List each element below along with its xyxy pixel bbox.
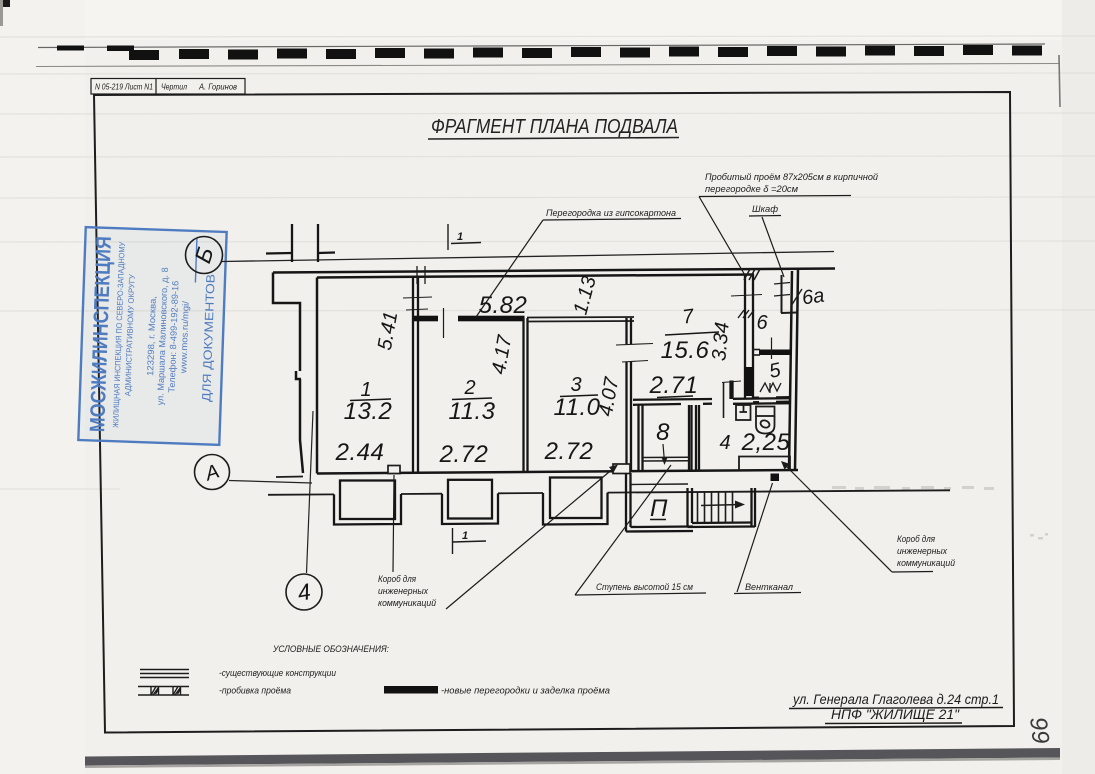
- svg-text:5.82: 5.82: [479, 292, 528, 319]
- svg-text:Короб для: Короб для: [378, 574, 416, 585]
- svg-text:6: 6: [756, 312, 768, 334]
- svg-text:2.71: 2.71: [649, 372, 699, 399]
- svg-text:Перегородка из гипсокартона: Перегородка из гипсокартона: [546, 208, 676, 219]
- svg-text:2.72: 2.72: [544, 438, 594, 465]
- svg-text:Короб для: Короб для: [897, 534, 935, 545]
- svg-text:УСЛОВНЫЕ ОБОЗНАЧЕНИЯ:: УСЛОВНЫЕ ОБОЗНАЧЕНИЯ:: [272, 644, 389, 655]
- svg-text:99: 99: [1024, 715, 1054, 745]
- svg-text:13.2: 13.2: [344, 398, 393, 425]
- svg-text:11.0: 11.0: [554, 394, 601, 421]
- svg-text:Пробитый проём 87х205см в кирп: Пробитый проём 87х205см в кирпичной: [705, 172, 879, 183]
- svg-text:4: 4: [719, 432, 730, 454]
- svg-text:6а: 6а: [801, 285, 826, 310]
- svg-text:Шкаф: Шкаф: [752, 204, 778, 215]
- svg-text:3.34: 3.34: [708, 321, 733, 362]
- svg-text:инженерных: инженерных: [897, 546, 948, 557]
- svg-text:инженерных: инженерных: [378, 586, 429, 597]
- svg-text:коммуникаций: коммуникаций: [378, 598, 437, 609]
- svg-text:-пробивка проёма: -пробивка проёма: [219, 686, 291, 697]
- svg-text:2,25: 2,25: [741, 429, 791, 456]
- svg-text:1: 1: [457, 231, 463, 243]
- svg-text:Вентканал: Вентканал: [745, 582, 794, 593]
- svg-text:11.3: 11.3: [449, 398, 496, 425]
- svg-text:ФРАГМЕНТ ПЛАНА ПОДВАЛА: ФРАГМЕНТ ПЛАНА ПОДВАЛА: [431, 116, 678, 138]
- svg-text:перегородке δ =20см: перегородке δ =20см: [705, 184, 798, 195]
- svg-text:ул. Генерала Глаголева д.24 ст: ул. Генерала Глаголева д.24 стр.1: [792, 691, 999, 707]
- svg-text:-новые перегородки и заделка п: -новые перегородки и заделка проёма: [441, 686, 610, 697]
- svg-text:Ступень высотой 15 см: Ступень высотой 15 см: [596, 582, 693, 593]
- svg-text:2.44: 2.44: [335, 439, 385, 466]
- svg-text:8: 8: [656, 419, 670, 446]
- svg-text:П: П: [650, 495, 668, 522]
- svg-text:А. Горинов: А. Горинов: [198, 83, 237, 92]
- svg-text:2: 2: [463, 377, 475, 399]
- svg-text:1: 1: [462, 530, 468, 542]
- svg-text:3: 3: [570, 374, 581, 396]
- svg-text:N 05-219 Лист N1: N 05-219 Лист N1: [95, 83, 153, 92]
- svg-text:-существующие конструкции: -существующие конструкции: [219, 668, 337, 679]
- svg-text:коммуникаций: коммуникаций: [897, 558, 956, 569]
- svg-text:Чертил: Чертил: [161, 83, 187, 92]
- svg-text:2.72: 2.72: [439, 441, 489, 468]
- svg-text:15.6: 15.6: [661, 337, 710, 364]
